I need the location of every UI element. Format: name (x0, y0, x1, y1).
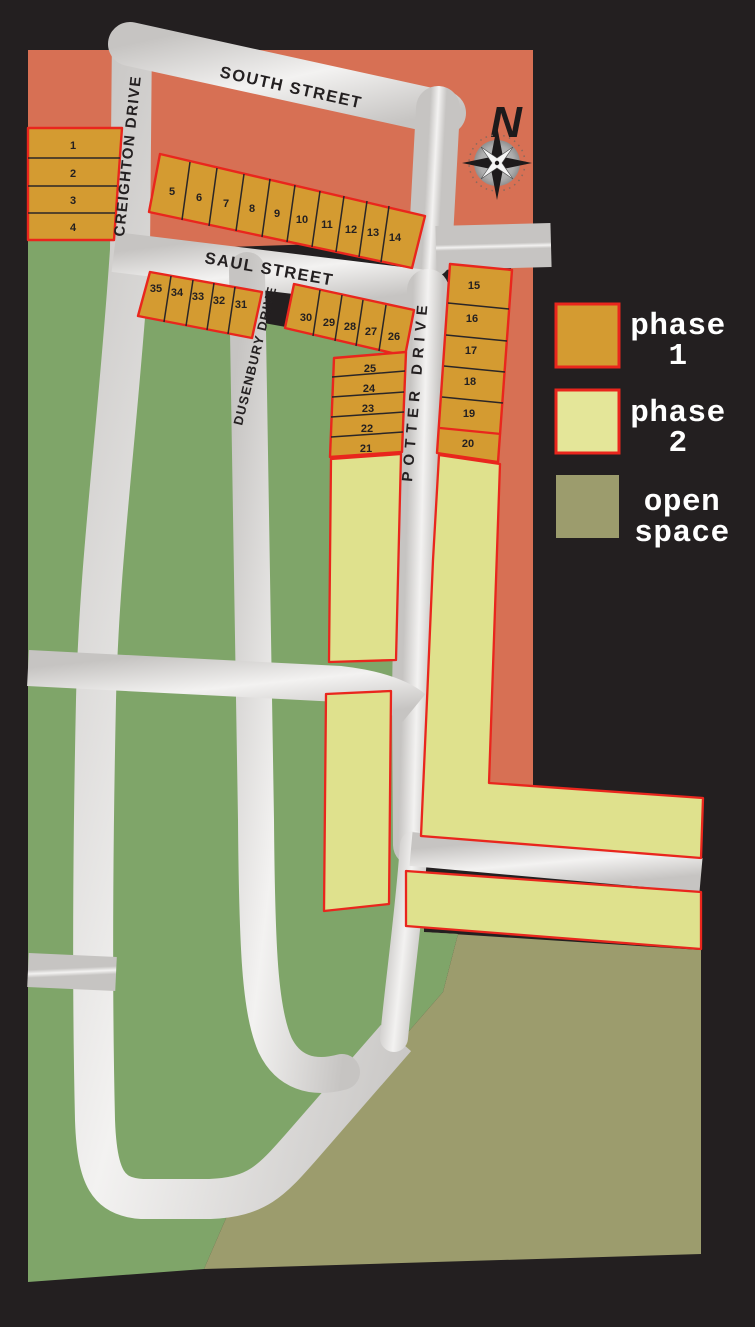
legend-label-phase1-line2: 1 (668, 339, 687, 374)
legend: phase 1 phase 2 open space (556, 304, 730, 551)
lot-number: 23 (362, 403, 374, 415)
compass-center-dot (495, 161, 499, 165)
legend-label-open-space-line1: open (644, 485, 720, 520)
lot-number: 31 (235, 299, 247, 311)
lot-number: 20 (462, 438, 474, 450)
lot-number: 13 (367, 227, 379, 239)
lot-number: 32 (213, 295, 225, 307)
lot-number: 29 (323, 317, 335, 329)
lot-number: 14 (389, 232, 402, 244)
lot-number: 5 (169, 186, 175, 198)
lot-number: 24 (363, 383, 376, 395)
legend-swatch-phase-2 (556, 390, 619, 453)
road-saul-stub (436, 245, 551, 248)
lot-number: 26 (388, 331, 400, 343)
lot-number: 12 (345, 224, 357, 236)
lot-number: 2 (70, 168, 76, 180)
lot-number: 22 (361, 423, 373, 435)
site-plan-map: 1 2 3 4 5 6 7 8 9 10 11 12 13 14 15 16 1… (0, 0, 755, 1327)
lot-number: 8 (249, 203, 255, 215)
lot-number: 28 (344, 321, 356, 333)
lot-number: 7 (223, 198, 229, 210)
lot-number: 15 (468, 280, 480, 292)
lot-number: 34 (171, 287, 184, 299)
site-plan-page: 1 2 3 4 5 6 7 8 9 10 11 12 13 14 15 16 1… (0, 0, 755, 1327)
legend-label-open-space-line2: space (634, 516, 730, 551)
legend-swatch-open-space (556, 475, 619, 538)
lot-number: 17 (465, 345, 477, 357)
lot-number: 6 (196, 192, 202, 204)
lot-number: 19 (463, 408, 475, 420)
lot-number: 30 (300, 312, 312, 324)
lot-number: 9 (274, 208, 280, 220)
lot-number: 10 (296, 214, 308, 226)
lot-number: 1 (70, 140, 76, 152)
phase2-strip-west-upper (329, 454, 401, 662)
lot-number: 11 (321, 219, 333, 231)
lot-number: 4 (70, 222, 77, 234)
road-cross-street-stub (28, 970, 116, 974)
lot-number: 35 (150, 283, 162, 295)
legend-label-phase2-line2: 2 (668, 426, 687, 461)
lot-number: 25 (364, 363, 376, 375)
lot-number: 3 (70, 195, 76, 207)
lot-number: 18 (464, 376, 476, 388)
legend-swatch-phase-1 (556, 304, 619, 367)
lot-number: 33 (192, 291, 204, 303)
lot-number: 27 (365, 326, 377, 338)
phase2-strip-west-lower (324, 691, 391, 911)
lot-number: 21 (360, 443, 372, 455)
lot-number: 16 (466, 313, 478, 325)
